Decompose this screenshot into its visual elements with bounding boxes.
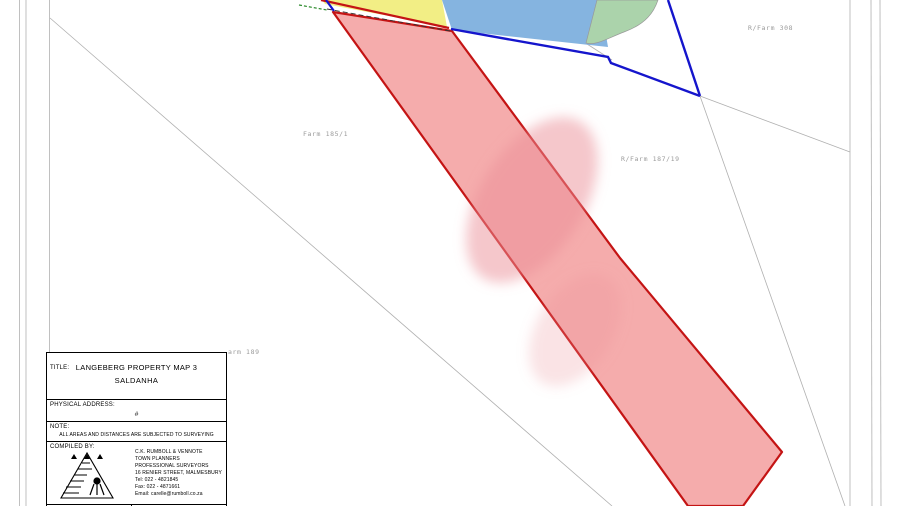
- title-row: TITLE: LANGEBERG PROPERTY MAP 3 SALDANHA: [47, 363, 226, 399]
- physical-address-label: PHYSICAL ADDRESS:: [50, 402, 115, 408]
- boundary-line: [871, 0, 872, 506]
- physical-address-row: PHYSICAL ADDRESS: #: [47, 399, 226, 421]
- farm-label: R/Farm 308: [748, 24, 793, 32]
- company-line: TOWN PLANNERS: [135, 456, 222, 463]
- company-email: Email: carelle@rumboll.co.za: [135, 491, 222, 498]
- company-fax: Fax: 022 - 4871661: [135, 484, 222, 491]
- compiled-by-label: COMPILED BY:: [50, 444, 95, 450]
- boundary-line: [700, 96, 850, 152]
- parcel-green: [586, 0, 658, 44]
- farm-label: arm 189: [228, 348, 260, 356]
- parcel-blue: [442, 0, 608, 47]
- note-row: NOTE: ALL AREAS AND DISTANCES ARE SUBJEC…: [47, 421, 226, 441]
- blue-boundary-line: [668, 0, 700, 96]
- map-title: LANGEBERG PROPERTY MAP 3: [47, 363, 226, 372]
- title-label: TITLE:: [50, 365, 69, 371]
- note-label: NOTE:: [50, 424, 69, 430]
- surveyor-contact: C.K. RUMBOLL & VENNOTE TOWN PLANNERS PRO…: [135, 449, 222, 498]
- physical-address-value: #: [47, 411, 226, 418]
- property-map-page: Farm 185/1 R/Farm 187/19 R/Farm 308 arm …: [0, 0, 900, 506]
- title-block: TITLE: LANGEBERG PROPERTY MAP 3 SALDANHA…: [46, 352, 227, 506]
- company-address: 16 RENIER STREET, MALMESBURY: [135, 470, 222, 477]
- green-dashed-line: [299, 5, 327, 10]
- surveyor-logo: [57, 451, 117, 501]
- compiled-by-row: COMPILED BY:: [47, 441, 226, 504]
- company-line: PROFESSIONAL SURVEYORS: [135, 463, 222, 470]
- boundary-line: [880, 0, 881, 506]
- farm-label: R/Farm 187/19: [621, 155, 680, 163]
- farm-label: Farm 185/1: [303, 130, 348, 138]
- parcel-pink-highlight: [333, 12, 782, 506]
- note-text: ALL AREAS AND DISTANCES ARE SUBJECTED TO…: [47, 432, 226, 438]
- map-subtitle: SALDANHA: [47, 376, 226, 385]
- company-tel: Tel: 022 - 4821845: [135, 477, 222, 484]
- company-name: C.K. RUMBOLL & VENNOTE: [135, 449, 222, 456]
